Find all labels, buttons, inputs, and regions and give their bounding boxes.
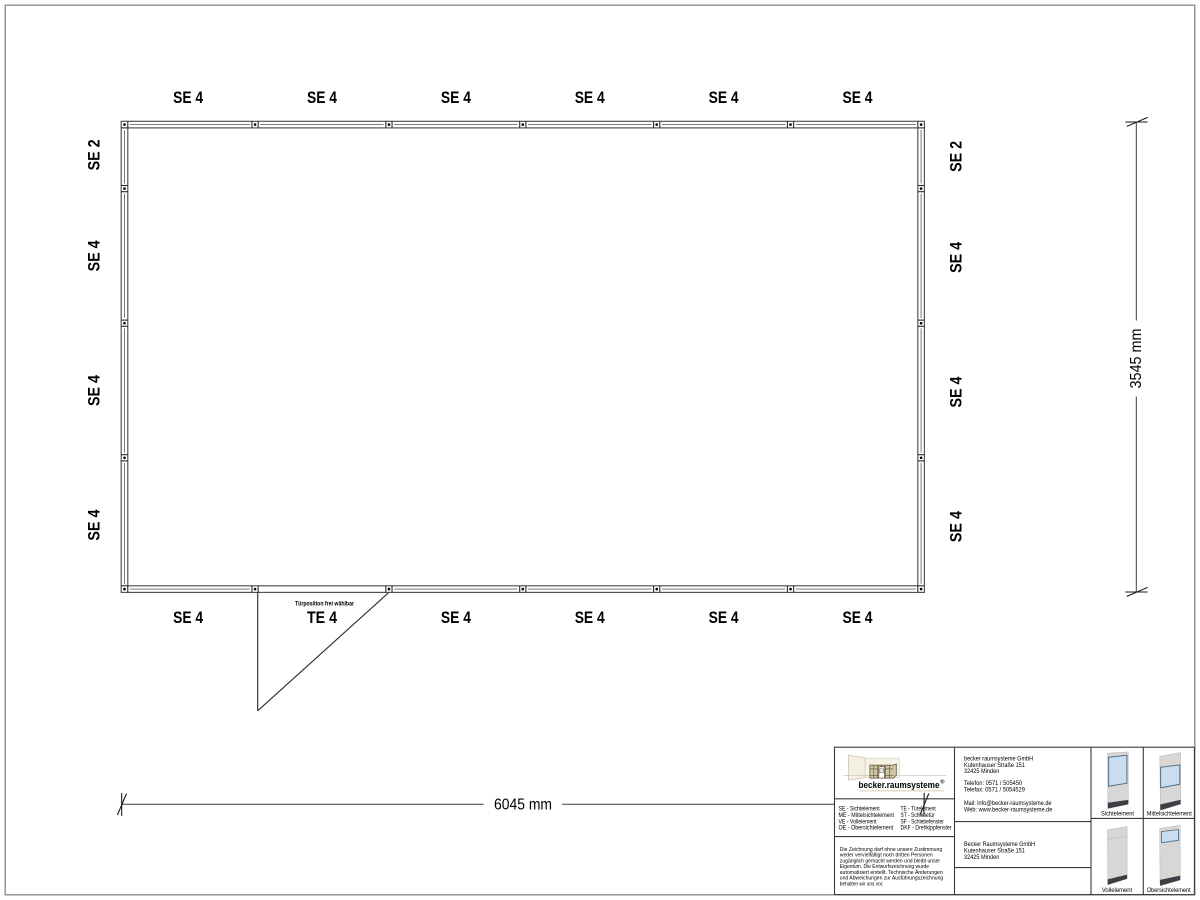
svg-text:SE 4: SE 4 [441, 88, 472, 107]
svg-text:32425 Minden: 32425 Minden [964, 768, 1000, 775]
svg-text:SE 4: SE 4 [84, 240, 103, 272]
svg-text:SE 4: SE 4 [575, 608, 606, 627]
svg-text:SE 2: SE 2 [84, 139, 103, 170]
svg-text:SE 4: SE 4 [173, 608, 204, 627]
svg-text:behalten wir uns vor.: behalten wir uns vor. [840, 881, 884, 887]
svg-text:SE 4: SE 4 [946, 241, 965, 273]
svg-text:Telefax: 0571 / 5054529: Telefax: 0571 / 5054529 [964, 787, 1025, 794]
svg-text:DKF - Drehkippfenster: DKF - Drehkippfenster [901, 825, 953, 832]
svg-text:SE 4: SE 4 [709, 88, 740, 107]
svg-text:SE 4: SE 4 [843, 608, 874, 627]
svg-text:SE 4: SE 4 [843, 88, 874, 107]
svg-text:Mittelsichtelement: Mittelsichtelement [1147, 811, 1192, 818]
svg-text:Obersichtelement: Obersichtelement [1147, 887, 1191, 894]
svg-text:SE 4: SE 4 [307, 88, 338, 107]
svg-text:SE 4: SE 4 [84, 374, 103, 406]
svg-text:Türposition frei wählbar: Türposition frei wählbar [295, 601, 354, 608]
svg-text:SE 4: SE 4 [84, 509, 103, 541]
svg-text:32425 Minden: 32425 Minden [964, 854, 1000, 861]
svg-text:OE - Obersichtelement: OE - Obersichtelement [839, 825, 894, 832]
svg-text:SE 4: SE 4 [173, 88, 204, 107]
svg-text:®: ® [940, 779, 945, 786]
svg-text:SE 4: SE 4 [946, 376, 965, 408]
svg-text:SE 2: SE 2 [946, 141, 965, 172]
svg-text:SE 4: SE 4 [575, 88, 606, 107]
svg-text:TE 4: TE 4 [307, 608, 338, 627]
svg-text:SE 4: SE 4 [946, 511, 965, 543]
svg-text:becker.raumsysteme: becker.raumsysteme [859, 780, 940, 791]
svg-text:Vollelement: Vollelement [1102, 887, 1132, 894]
svg-text:3545 mm: 3545 mm [1128, 329, 1145, 389]
svg-text:SE 4: SE 4 [441, 608, 472, 627]
svg-text:6045 mm: 6045 mm [494, 797, 552, 814]
svg-text:Sichtelement: Sichtelement [1101, 811, 1134, 818]
svg-text:SE 4: SE 4 [709, 608, 740, 627]
svg-text:Web: www.becker-raumsysteme.de: Web: www.becker-raumsysteme.de [964, 806, 1053, 813]
